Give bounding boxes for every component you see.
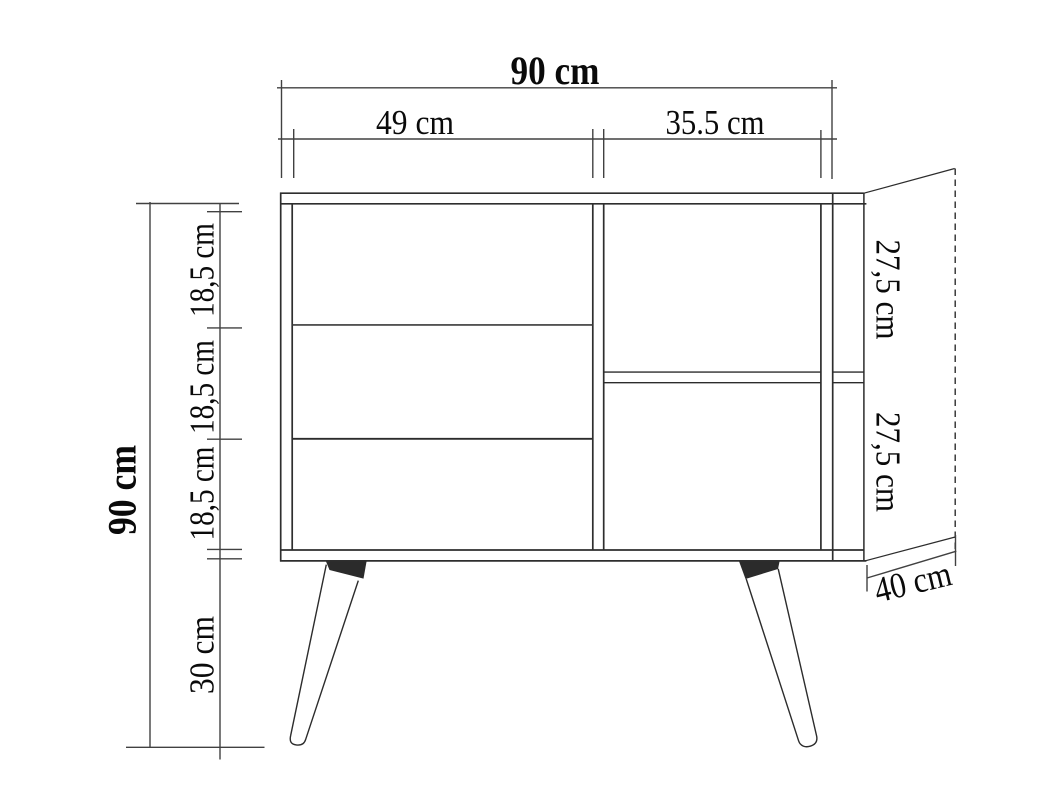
svg-text:18,5 cm: 18,5 cm [183,223,222,317]
svg-text:35.5 cm: 35.5 cm [666,103,765,142]
svg-text:18,5 cm: 18,5 cm [183,340,222,434]
svg-text:90 cm: 90 cm [100,445,145,535]
svg-text:30 cm: 30 cm [183,616,222,694]
svg-text:27,5 cm: 27,5 cm [869,240,908,340]
svg-text:27,5 cm: 27,5 cm [869,412,908,512]
svg-text:49 cm: 49 cm [376,103,454,142]
svg-text:18,5 cm: 18,5 cm [183,447,222,541]
svg-text:90 cm: 90 cm [511,48,600,93]
